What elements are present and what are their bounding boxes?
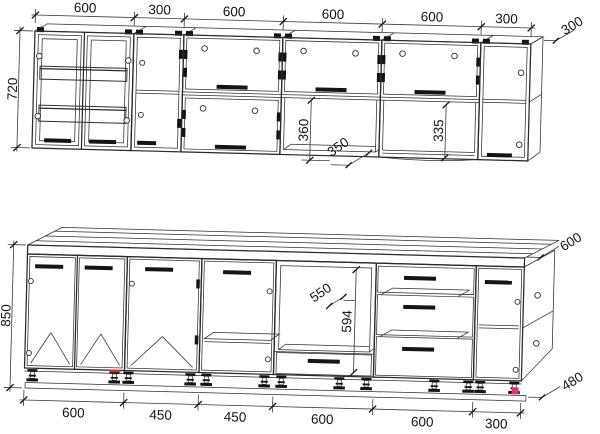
dim-label-countertop-depth: 600: [557, 230, 584, 255]
dim-label-upper-width-4: 600: [322, 7, 345, 23]
drawer-handle: [402, 347, 434, 352]
lower-width-dimension-chain: 600 450 450 600 600 300: [19, 390, 525, 432]
dim-label-upper-width-3: 600: [223, 4, 246, 20]
magenta-marker: [511, 387, 518, 394]
door-handle: [137, 141, 156, 145]
oven-niche-height-dimension: 594: [338, 266, 360, 376]
drawer-handle: [308, 359, 340, 364]
dim-label-upper-width-1: 600: [74, 0, 97, 16]
side-panel: [521, 250, 554, 382]
countertop-depth-leader: 600: [527, 228, 585, 261]
dim-label-upper-width-2: 300: [148, 2, 171, 18]
wall-cabinet-dish-600: [32, 31, 134, 151]
base-cabinet-600-double-door: [25, 254, 128, 371]
lower-height-dimension: 850: [0, 240, 26, 392]
base-cabinet-300: [473, 248, 554, 381]
door-handle: [89, 139, 116, 144]
base-cabinet-450-a: [124, 257, 201, 373]
upper-width-dimension-chain: 600 300 600 600 600 300: [31, 0, 535, 36]
dim-label-lower-height: 850: [0, 304, 14, 327]
dim-label-lower-width-2: 450: [149, 407, 172, 423]
flip-door-handle: [217, 85, 248, 90]
door-handle: [35, 264, 63, 269]
flip-door-handle: [414, 90, 445, 95]
dim-label-oven-width: 550: [307, 280, 334, 305]
wall-cabinet-flip-600-a: [181, 35, 283, 155]
flip-section-height-dimension: 360: [295, 96, 331, 164]
door-handle: [44, 138, 71, 143]
dim-label-carcass-depth: 480: [559, 369, 586, 394]
door-handle: [485, 280, 512, 285]
flip-door-handle: [316, 87, 347, 92]
dim-label-upper-width-5: 600: [421, 9, 444, 25]
adjustable-legs: [24, 369, 526, 401]
countertop: [28, 227, 560, 268]
dim-label-upper-depth: 300: [559, 13, 586, 38]
dim-label-lower-width-4: 600: [311, 411, 334, 427]
shelf: [204, 332, 279, 340]
upper-depth-leader: 300: [544, 12, 586, 44]
dim-label-oven-height: 594: [339, 309, 355, 332]
wall-cabinet-open-600: [379, 40, 481, 162]
open-niche-height-dimension: 335: [430, 101, 450, 161]
wall-shelf-unit-300: [478, 35, 543, 161]
dim-label-lower-width-5: 600: [411, 414, 434, 430]
door-handle: [487, 153, 512, 158]
dim-label-upper-width-6: 300: [495, 11, 518, 27]
wall-cabinet-row: 600 300 600 600 600 300 720 300: [3, 0, 586, 174]
drawing-canvas: 600 300 600 600 600 300 720 300: [0, 0, 600, 434]
door-handle: [85, 265, 113, 270]
base-drawer-cabinet-600: [373, 263, 476, 380]
oven-niche-width-leader: 550: [307, 280, 356, 310]
door-handle: [145, 267, 173, 272]
base-cabinet-row: 594 550: [0, 214, 590, 433]
dim-label-open-niche-height: 335: [431, 119, 447, 142]
dim-label-flip-height: 360: [296, 119, 312, 142]
carcass-depth-leader: 480: [528, 368, 586, 402]
red-marker: [109, 370, 120, 373]
wall-cabinet-300: [131, 34, 184, 152]
base-cabinet-450-b: [199, 259, 281, 375]
dim-label-lower-width-6: 300: [485, 416, 508, 432]
upper-height-dimension: 720: [3, 26, 33, 152]
dim-label-lower-width-1: 600: [62, 405, 85, 421]
drawer-handle: [404, 276, 436, 281]
base-oven-cabinet-600: [273, 261, 376, 378]
dim-label-lower-width-3: 450: [224, 409, 247, 425]
door-handle: [223, 270, 251, 275]
drawer-handle: [403, 305, 435, 310]
kitchen-assembly-drawing: 600 300 600 600 600 300 720 300: [0, 0, 600, 434]
flip-door-handle: [215, 145, 246, 150]
dim-label-upper-height: 720: [5, 77, 21, 100]
